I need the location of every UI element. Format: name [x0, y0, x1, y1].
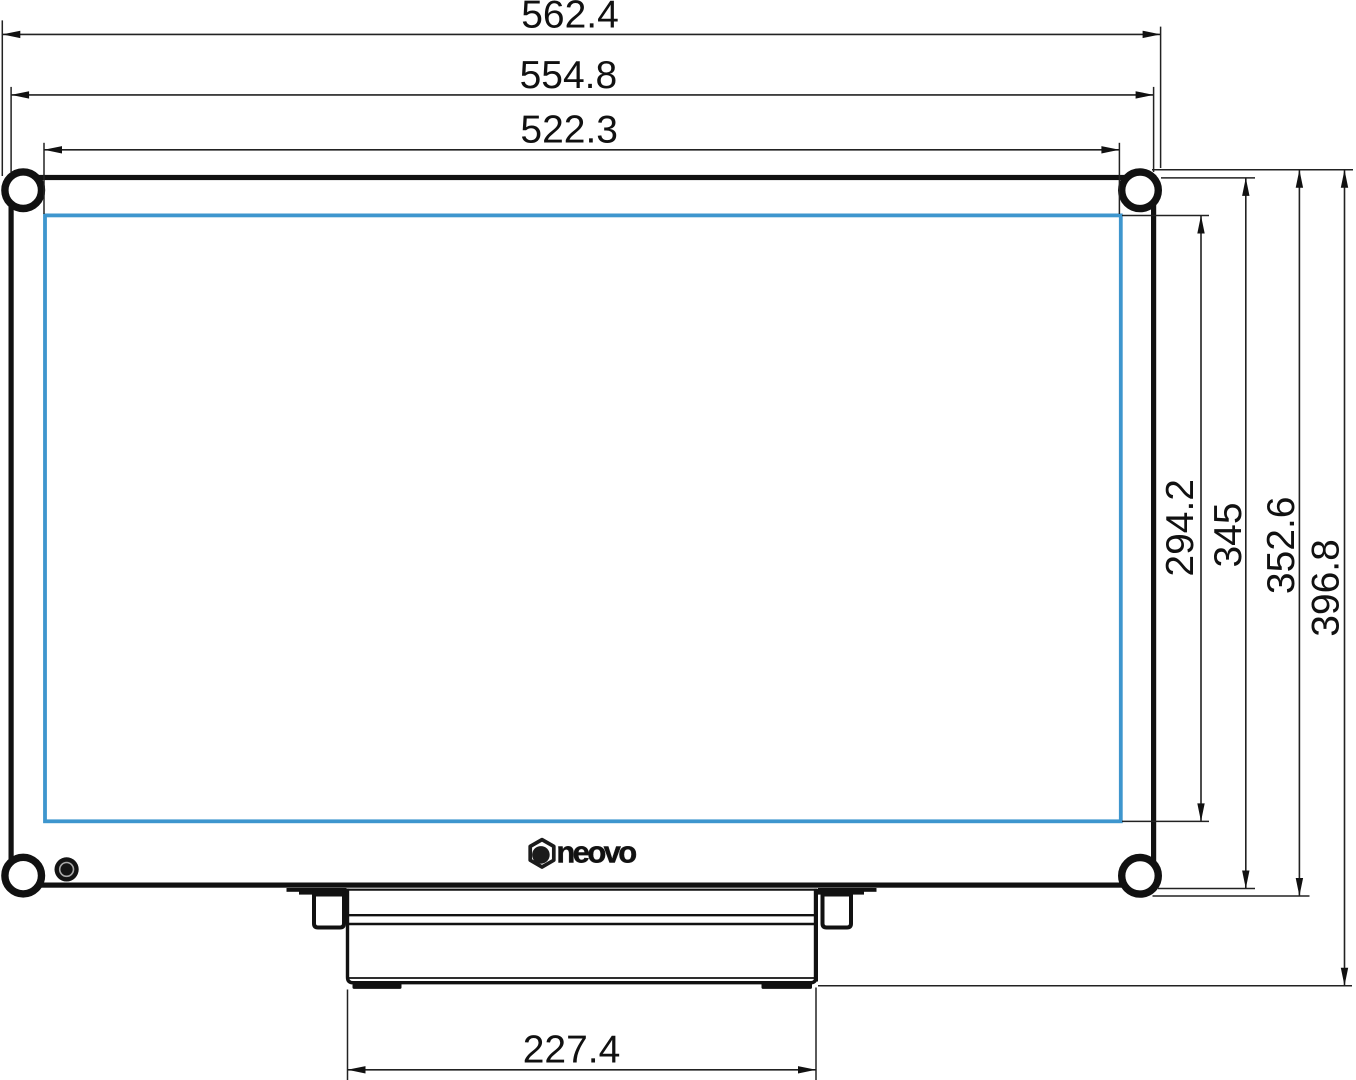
svg-text:345: 345 [1207, 502, 1250, 567]
svg-text:522.3: 522.3 [520, 109, 618, 152]
svg-text:294.2: 294.2 [1159, 479, 1202, 577]
svg-text:neovo: neovo [556, 835, 636, 870]
svg-text:554.8: 554.8 [520, 54, 618, 97]
svg-text:396.8: 396.8 [1305, 539, 1348, 637]
svg-text:562.4: 562.4 [521, 0, 619, 37]
svg-text:227.4: 227.4 [523, 1029, 621, 1072]
svg-text:352.6: 352.6 [1260, 496, 1303, 594]
